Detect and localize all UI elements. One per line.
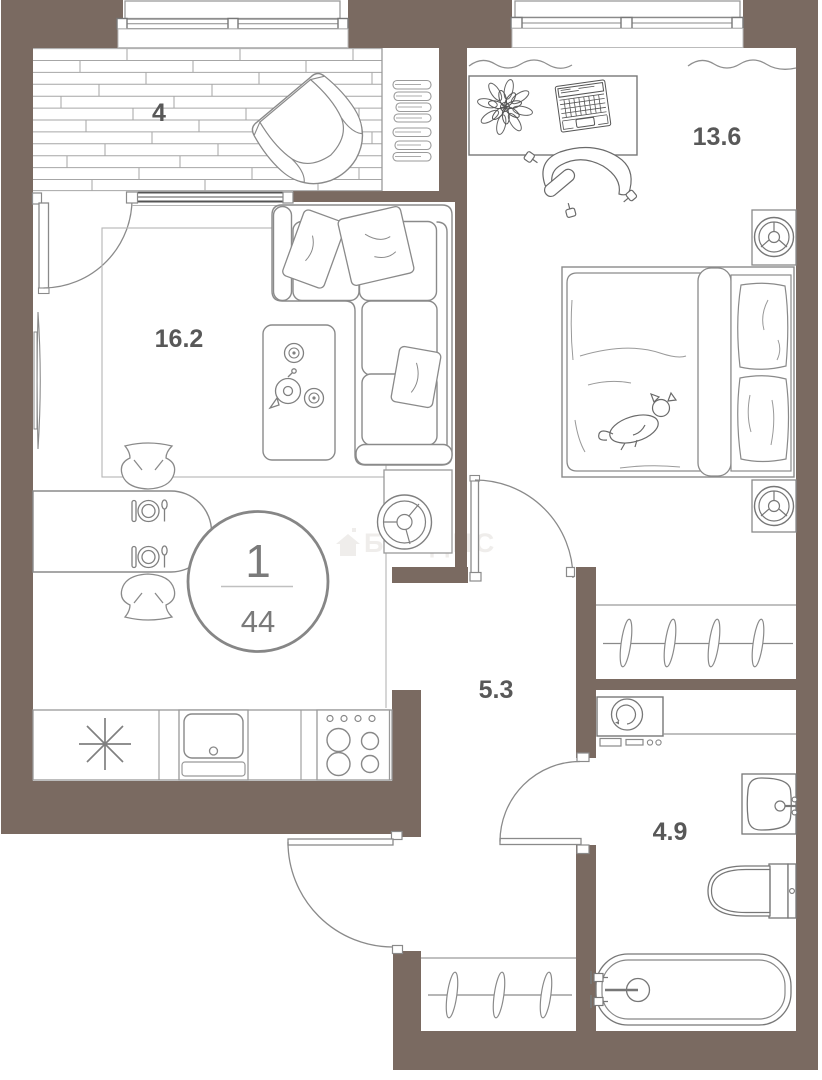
svg-text:5.3: 5.3 [479, 676, 514, 704]
svg-text:1: 1 [245, 535, 271, 587]
svg-text:44: 44 [241, 604, 275, 639]
svg-text:4.9: 4.9 [653, 818, 688, 846]
svg-text:16.2: 16.2 [155, 325, 204, 353]
svg-text:4: 4 [152, 99, 166, 127]
svg-text:13.6: 13.6 [693, 123, 742, 151]
